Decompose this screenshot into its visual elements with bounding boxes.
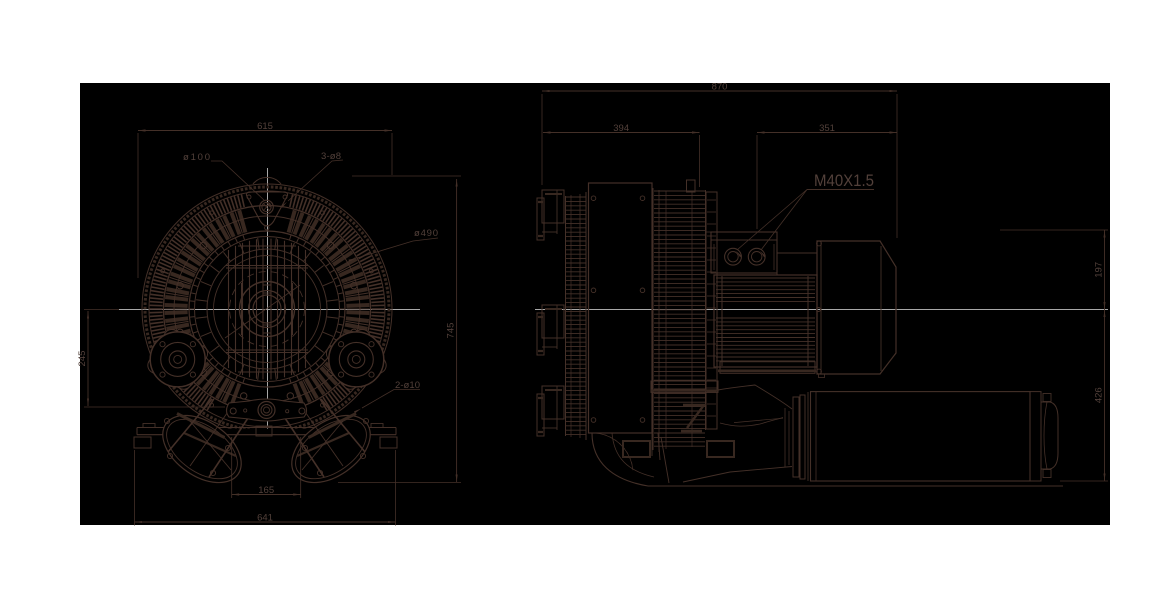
svg-text:197: 197 [1094,262,1105,278]
svg-text:745: 745 [446,323,457,339]
svg-text:641: 641 [257,513,273,524]
svg-text:M40X1.5: M40X1.5 [814,171,874,190]
svg-text:615: 615 [257,121,273,132]
svg-text:870: 870 [712,82,728,93]
svg-text:426: 426 [1094,387,1105,403]
svg-text:ø490: ø490 [414,228,438,239]
svg-text:351: 351 [819,123,835,134]
svg-text:245: 245 [77,351,88,367]
svg-text:165: 165 [258,485,274,496]
svg-text:394: 394 [613,123,629,134]
